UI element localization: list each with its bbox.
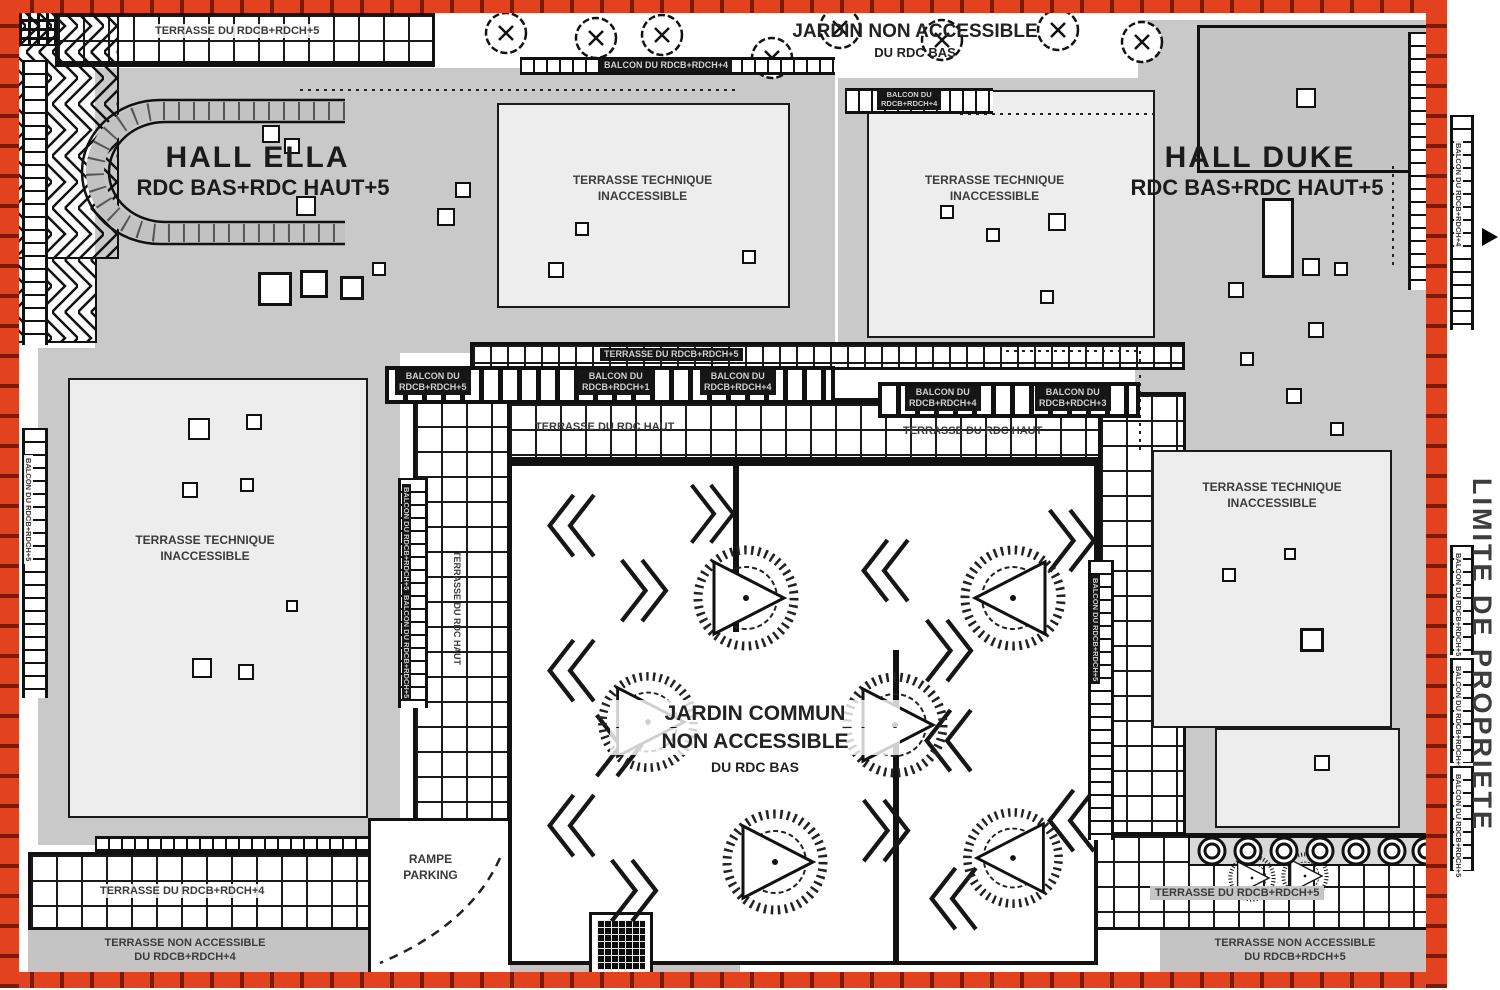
property-border-right: [1426, 0, 1447, 988]
balcony-label-vertical: BALCON DU RDCB+RDCH+5: [1454, 663, 1463, 772]
roof-element: [1330, 422, 1344, 436]
hall-ella-levels: RDC BAS+RDC HAUT+5: [118, 174, 408, 203]
property-limit-label: LIMITE DE PROPRIETE: [1466, 478, 1497, 832]
garden-wall: [733, 462, 739, 632]
terrasse-technique-label-2: TERRASSE TECHNIQUEINACCESSIBLE: [872, 173, 1117, 204]
roof-element: [1228, 282, 1244, 298]
terrasse-technique-box-1: [497, 103, 790, 308]
roof-element: [940, 205, 954, 219]
hall-duke-name: HALL DUKE: [1140, 138, 1380, 177]
terrasse-technique-box-left: [68, 378, 368, 818]
rampe-parking-zone: [368, 818, 510, 975]
terrace-non-accessible-left-label: TERRASSE NON ACCESSIBLEDU RDCB+RDCH+4: [60, 936, 310, 965]
terrasse-technique-label-left: TERRASSE TECHNIQUEINACCESSIBLE: [85, 533, 325, 564]
terrace-non-accessible-right-label: TERRASSE NON ACCESSIBLEDU RDCB+RDCH+5: [1170, 936, 1420, 965]
roof-element: [1262, 198, 1294, 278]
jardin-commun-line2: NON ACCESSIBLE: [610, 728, 900, 755]
garden-wall: [893, 650, 899, 962]
roof-element: [1300, 628, 1324, 652]
balcony-label: BALCON DURDCB+RDCH+4: [877, 89, 941, 110]
terrasse-technique-box-2: [867, 90, 1155, 338]
balcony-label-vertical: BALCON DU RDCB+RDCH+5: [1454, 771, 1463, 880]
balcony-label: BALCON DURDCB+RDCH+1: [578, 370, 654, 395]
roof-element: [1286, 388, 1302, 404]
property-border-bottom: [0, 972, 1447, 988]
terrasse-technique-label-1: TERRASSE TECHNIQUEINACCESSIBLE: [520, 173, 765, 204]
terrace-label-middle: TERRASSE DU RDCB+RDCH+5: [600, 348, 743, 361]
roof-element: [238, 664, 254, 680]
balcony-label: BALCON DURDCB+RDCH+4: [700, 370, 776, 395]
roof-element: [1240, 352, 1254, 366]
jardin-top-title: JARDIN NON ACCESSIBLE: [775, 20, 1055, 45]
jardin-commun-line1: JARDIN COMMUN: [610, 700, 900, 727]
jardin-commun-line3: DU RDC BAS: [610, 758, 900, 776]
roof-element: [986, 228, 1000, 242]
hall-ella-name: HALL ELLA: [145, 138, 370, 177]
terrace-label-top-left: TERRASSE DU RDCB+RDCH+5: [150, 24, 324, 38]
roof-element: [742, 250, 756, 264]
terrace-box-right-lower: [1215, 728, 1400, 828]
ventilation-grille: [592, 915, 650, 975]
balcony-column-left-upper: [22, 60, 48, 345]
balcony-label: BALCON DURDCB+RDCH+3: [1035, 386, 1111, 411]
roof-element: [1302, 258, 1320, 276]
terrace-label-bottom-right: TERRASSE DU RDCB+RDCH+5: [1150, 886, 1324, 900]
roof-element: [575, 222, 589, 236]
balcony-label: BALCON DURDCB+RDCH+4: [905, 386, 981, 411]
roof-element: [246, 414, 262, 430]
terrasse-technique-label-right: TERRASSE TECHNIQUEINACCESSIBLE: [1152, 480, 1392, 511]
balcony-label-vertical: BALCON DU RDCB+RDCH+5: [402, 484, 411, 593]
site-plan: BALCON DU RDCB+RDCH+4 BALCON DURDCB+RDCH…: [0, 0, 1500, 990]
roof-element: [258, 272, 292, 306]
roof-element: [372, 262, 386, 276]
roof-element: [182, 482, 198, 498]
balcony-label: BALCON DU RDCB+RDCH+4: [600, 59, 732, 72]
balcony-label-vertical: BALCON DU RDCB+RDCH+5: [402, 592, 411, 701]
roof-element: [340, 276, 364, 300]
roof-element: [300, 270, 328, 298]
hall-duke-levels: RDC BAS+RDC HAUT+5: [1122, 174, 1392, 203]
jardin-top-subtitle: DU RDC BAS: [775, 45, 1055, 62]
terrace-label-bottom-left: TERRASSE DU RDCB+RDCH+4: [95, 884, 269, 898]
roof-element: [240, 478, 254, 492]
roof-element: [548, 262, 564, 278]
balcony-label: BALCON DURDCB+RDCH+5: [395, 370, 471, 395]
roof-element: [1284, 548, 1296, 560]
rampe-parking-label: RAMPEPARKING: [378, 852, 483, 883]
roof-element: [1222, 568, 1236, 582]
roof-element: [192, 658, 212, 678]
property-border-top: [0, 0, 1447, 13]
roof-element: [1040, 290, 1054, 304]
balcony-label-vertical: BALCON DU RDCB+RDCH+5: [1091, 575, 1100, 684]
roof-element: [1048, 213, 1066, 231]
balcony-label-vertical: BALCON DU RDCB+RDCH+5: [1454, 550, 1463, 659]
terrace-label-rdc-haut-left: TERRASSE DU RDC HAUT: [530, 420, 679, 434]
roof-element: [1308, 322, 1324, 338]
planter-band: [1188, 836, 1440, 866]
terrace-grid-top-left: [55, 12, 435, 67]
roof-element: [188, 418, 210, 440]
roof-element: [1314, 755, 1330, 771]
balcony-label-vertical: BALCON DU RDCB+RDCH+5: [24, 455, 33, 564]
roof-element: [437, 208, 455, 226]
property-border-left: [0, 0, 19, 988]
roof-element: [286, 600, 298, 612]
balcony-label-vertical: BALCON DU RDCB+RDCH+4: [1454, 140, 1463, 249]
north-arrow-icon: [1482, 228, 1498, 246]
roof-element: [1296, 88, 1316, 108]
terrace-label-rdc-haut-vertical: TERRASSE DU RDC HAUT: [452, 548, 462, 668]
terrace-label-rdc-haut-right: TERRASSE DU RDC HAUT: [898, 424, 1047, 438]
roof-element: [455, 182, 471, 198]
roof-element: [1334, 262, 1348, 276]
